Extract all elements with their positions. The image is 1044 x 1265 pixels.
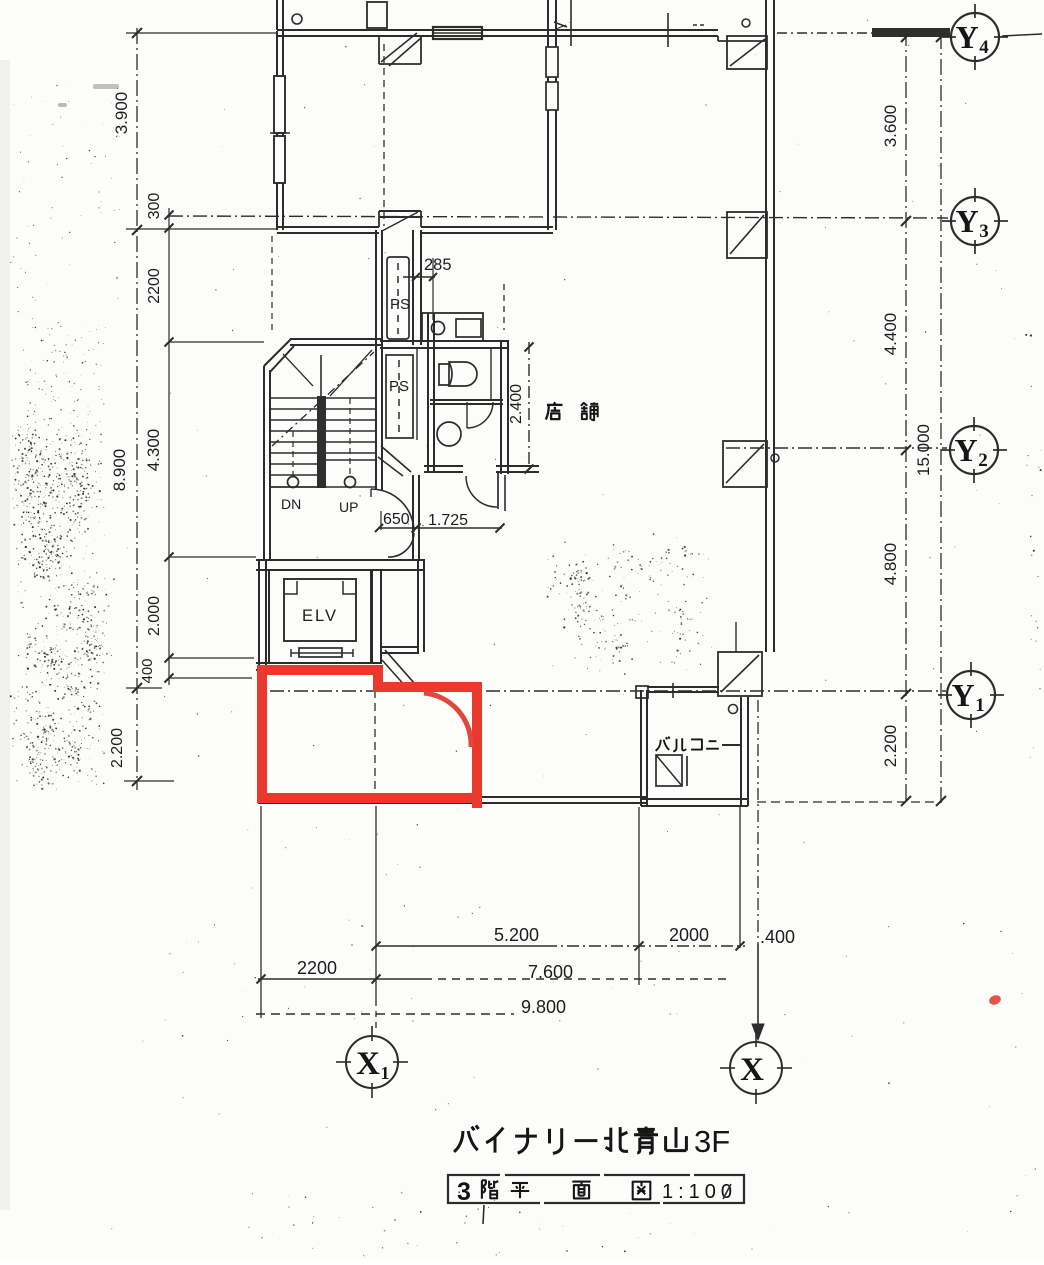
- svg-text:Y: Y: [955, 203, 978, 239]
- svg-text:8.900: 8.900: [110, 449, 129, 492]
- svg-text:15.000: 15.000: [914, 424, 933, 476]
- svg-text:X: X: [740, 1052, 764, 1088]
- svg-text:3.900: 3.900: [112, 92, 131, 135]
- svg-text:4.400: 4.400: [881, 313, 900, 356]
- svg-text:DN: DN: [281, 496, 301, 512]
- svg-text:2.000: 2.000: [146, 596, 163, 636]
- svg-text:5.200: 5.200: [494, 925, 539, 945]
- svg-text:2200: 2200: [297, 958, 337, 978]
- svg-text:4.800: 4.800: [881, 543, 900, 586]
- svg-text:2: 2: [978, 450, 988, 471]
- svg-text:1.725: 1.725: [428, 512, 468, 529]
- svg-text:3.600: 3.600: [881, 105, 900, 148]
- svg-text:1: 1: [381, 1063, 390, 1083]
- svg-text:7.600: 7.600: [528, 962, 573, 982]
- svg-text:2000: 2000: [669, 925, 709, 945]
- svg-text:Y: Y: [955, 19, 978, 55]
- svg-text:PS: PS: [389, 378, 409, 395]
- svg-text:Y: Y: [954, 432, 977, 468]
- svg-text:2.400: 2.400: [508, 384, 525, 424]
- svg-text:.400: .400: [760, 927, 795, 947]
- svg-text:9.800: 9.800: [521, 997, 566, 1017]
- svg-text:400: 400: [139, 658, 156, 683]
- svg-text:UP: UP: [339, 499, 358, 515]
- svg-text:4.300: 4.300: [144, 429, 163, 472]
- svg-text:285: 285: [424, 256, 452, 274]
- svg-text:2.200: 2.200: [881, 725, 900, 768]
- svg-text:3F: 3F: [694, 1124, 730, 1159]
- svg-text:ELV: ELV: [302, 607, 338, 625]
- svg-text:Y: Y: [951, 677, 974, 713]
- svg-text:3: 3: [457, 1178, 471, 1206]
- svg-text:3: 3: [979, 221, 989, 242]
- svg-text:300: 300: [146, 193, 163, 220]
- svg-text:2.200: 2.200: [109, 728, 126, 768]
- svg-text:2200: 2200: [146, 268, 163, 304]
- svg-text:650: 650: [383, 511, 410, 528]
- svg-text:1: 1: [975, 695, 985, 716]
- svg-text:1:100: 1:100: [662, 1181, 737, 1203]
- svg-text:4: 4: [979, 37, 989, 58]
- svg-text:X: X: [356, 1046, 380, 1082]
- svg-text:PS: PS: [390, 296, 410, 313]
